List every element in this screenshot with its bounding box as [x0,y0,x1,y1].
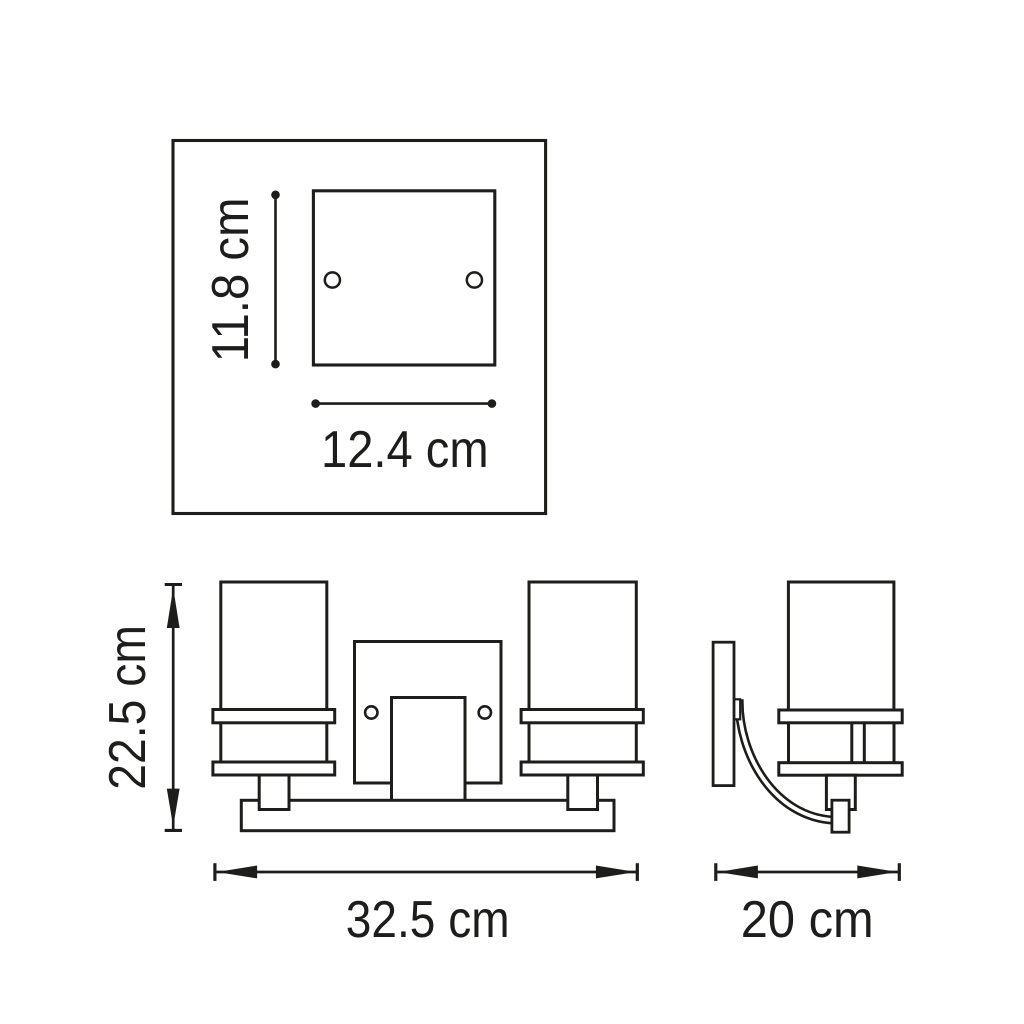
svg-text:32.5 cm: 32.5 cm [346,891,510,949]
svg-text:12.4 cm: 12.4 cm [321,421,489,479]
svg-text:20 cm: 20 cm [741,891,874,949]
svg-text:11.8 cm: 11.8 cm [202,198,260,363]
svg-text:22.5 cm: 22.5 cm [99,625,157,790]
